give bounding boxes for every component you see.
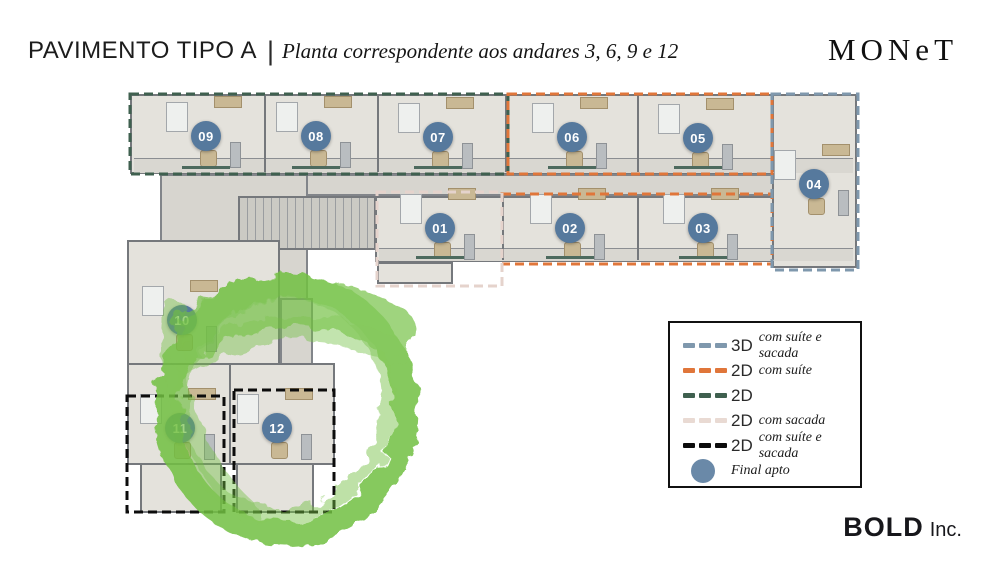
legend-desc: com suíte e sacada	[759, 430, 860, 462]
furniture-bed	[142, 286, 164, 316]
unit-badge-04: 04	[799, 169, 829, 199]
building-mass-unit01-balcony	[377, 262, 453, 284]
furniture-wardrobe	[706, 98, 734, 110]
furniture-wardrobe	[711, 188, 739, 200]
furniture-bed	[237, 394, 259, 424]
legend-box: 3Dcom suíte e sacada2Dcom suíte2D2Dcom s…	[668, 321, 862, 488]
wall-divider	[637, 198, 639, 260]
furniture-bed	[166, 102, 188, 132]
unit-badge-11: 11	[165, 413, 195, 443]
furniture-bed	[398, 103, 420, 133]
furniture-rail	[292, 166, 340, 169]
furniture-sofa	[838, 190, 849, 216]
furniture-sofa	[594, 234, 605, 260]
furniture-sofa	[727, 234, 738, 260]
wall-divider	[772, 198, 774, 260]
furniture-sofa	[596, 143, 607, 169]
furniture-sofa	[722, 144, 733, 170]
furniture-bed	[532, 103, 554, 133]
legend-code: 2D	[731, 386, 753, 406]
furniture-bed	[663, 194, 685, 224]
legend-rows: 3Dcom suíte e sacada2Dcom suíte2D2Dcom s…	[683, 333, 860, 483]
furniture-rail	[182, 166, 230, 169]
legend-desc: com sacada	[759, 413, 826, 429]
furniture-sofa	[204, 434, 215, 460]
unit-badge-01: 01	[425, 213, 455, 243]
furniture-rail	[414, 166, 462, 169]
unit-badge-08: 08	[301, 121, 331, 151]
furniture-bed	[530, 194, 552, 224]
legend-desc: com suíte e sacada	[759, 330, 860, 362]
legend-code: 2D	[731, 361, 753, 381]
legend-item-5: 2Dcom suíte e sacada	[683, 433, 860, 458]
final-apto-circle-icon	[683, 459, 731, 483]
furniture-wardrobe	[580, 97, 608, 109]
dash-sample-icon	[683, 343, 731, 348]
dash-sample-icon	[683, 418, 731, 423]
furniture-wardrobe	[446, 97, 474, 109]
wall-divider	[505, 96, 507, 172]
furniture-wardrobe	[324, 96, 352, 108]
furniture-bed	[774, 150, 796, 180]
furniture-bed	[658, 104, 680, 134]
furniture-rail	[416, 256, 464, 259]
furniture-rail	[679, 256, 727, 259]
furniture-table	[808, 198, 825, 215]
furniture-bed	[400, 194, 422, 224]
wall-divider	[377, 96, 379, 172]
legend-code: 3D	[731, 336, 753, 356]
wall-divider	[637, 96, 639, 172]
furniture-wardrobe	[578, 188, 606, 200]
unit-badge-05: 05	[683, 123, 713, 153]
legend-code: 2D	[731, 436, 753, 456]
legend-item-6: Final apto	[683, 458, 860, 483]
balcony-strip-top	[134, 158, 853, 173]
building-mass-lower-corridor	[280, 298, 313, 368]
legend-item-1: 3Dcom suíte e sacada	[683, 333, 860, 358]
wall-divider	[229, 365, 231, 463]
wall-divider	[264, 96, 266, 172]
furniture-table	[176, 334, 193, 351]
inc-logo-text: Inc.	[930, 519, 962, 541]
unit-badge-10: 10	[167, 305, 197, 335]
dash-sample-icon	[683, 393, 731, 398]
furniture-table	[174, 442, 191, 459]
furniture-rail	[548, 166, 596, 169]
unit-badge-09: 09	[191, 121, 221, 151]
unit-badge-03: 03	[688, 213, 718, 243]
furniture-bed	[276, 102, 298, 132]
building-mass-lower-tab-left	[140, 463, 222, 513]
unit-badge-12: 12	[262, 413, 292, 443]
furniture-bed	[140, 394, 162, 424]
dash-sample-icon	[683, 368, 731, 373]
unit-badge-02: 02	[555, 213, 585, 243]
furniture-sofa	[464, 234, 475, 260]
unit-badge-07: 07	[423, 122, 453, 152]
furniture-table	[271, 442, 288, 459]
furniture-wardrobe	[285, 388, 313, 400]
furniture-wardrobe	[188, 388, 216, 400]
legend-desc: Final apto	[731, 463, 790, 479]
furniture-sofa	[206, 326, 217, 352]
furniture-table	[200, 150, 217, 167]
furniture-wardrobe	[190, 280, 218, 292]
bold-logo-text: BOLD	[843, 512, 924, 542]
legend-item-2: 2Dcom suíte	[683, 358, 860, 383]
furniture-wardrobe	[448, 188, 476, 200]
unit-badge-06: 06	[557, 122, 587, 152]
legend-desc: com suíte	[759, 363, 812, 379]
furniture-sofa	[340, 142, 351, 168]
furniture-sofa	[462, 143, 473, 169]
furniture-table	[310, 150, 327, 167]
furniture-rail	[674, 166, 722, 169]
furniture-rail	[546, 256, 594, 259]
dash-sample-icon	[683, 443, 731, 448]
legend-code: 2D	[731, 411, 753, 431]
furniture-sofa	[230, 142, 241, 168]
furniture-wardrobe	[822, 144, 850, 156]
legend-item-3: 2D	[683, 383, 860, 408]
building-mass-lower-tab-right	[236, 463, 314, 513]
furniture-wardrobe	[214, 96, 242, 108]
wall-divider	[502, 198, 504, 260]
bold-inc-logo: BOLDInc.	[843, 512, 962, 543]
furniture-sofa	[301, 434, 312, 460]
